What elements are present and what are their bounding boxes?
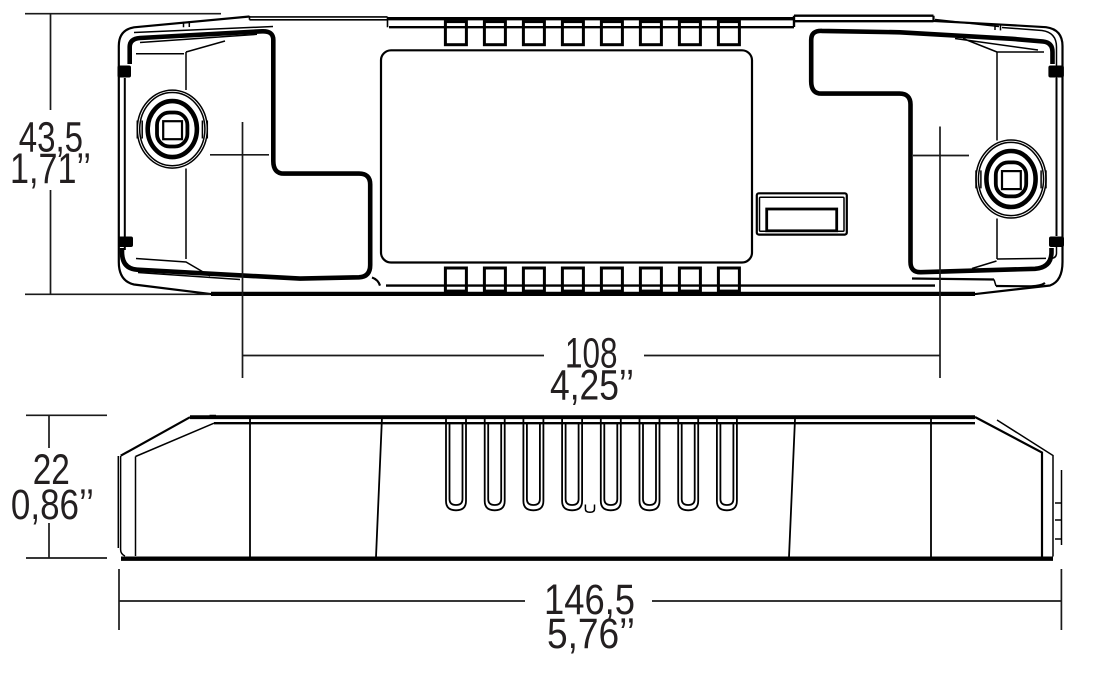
svg-text:1,71’’: 1,71’’	[10, 145, 91, 193]
svg-text:5,76’’: 5,76’’	[547, 610, 635, 658]
svg-text:4,25’’: 4,25’’	[550, 362, 634, 410]
svg-text:0,86’’: 0,86’’	[11, 481, 94, 529]
